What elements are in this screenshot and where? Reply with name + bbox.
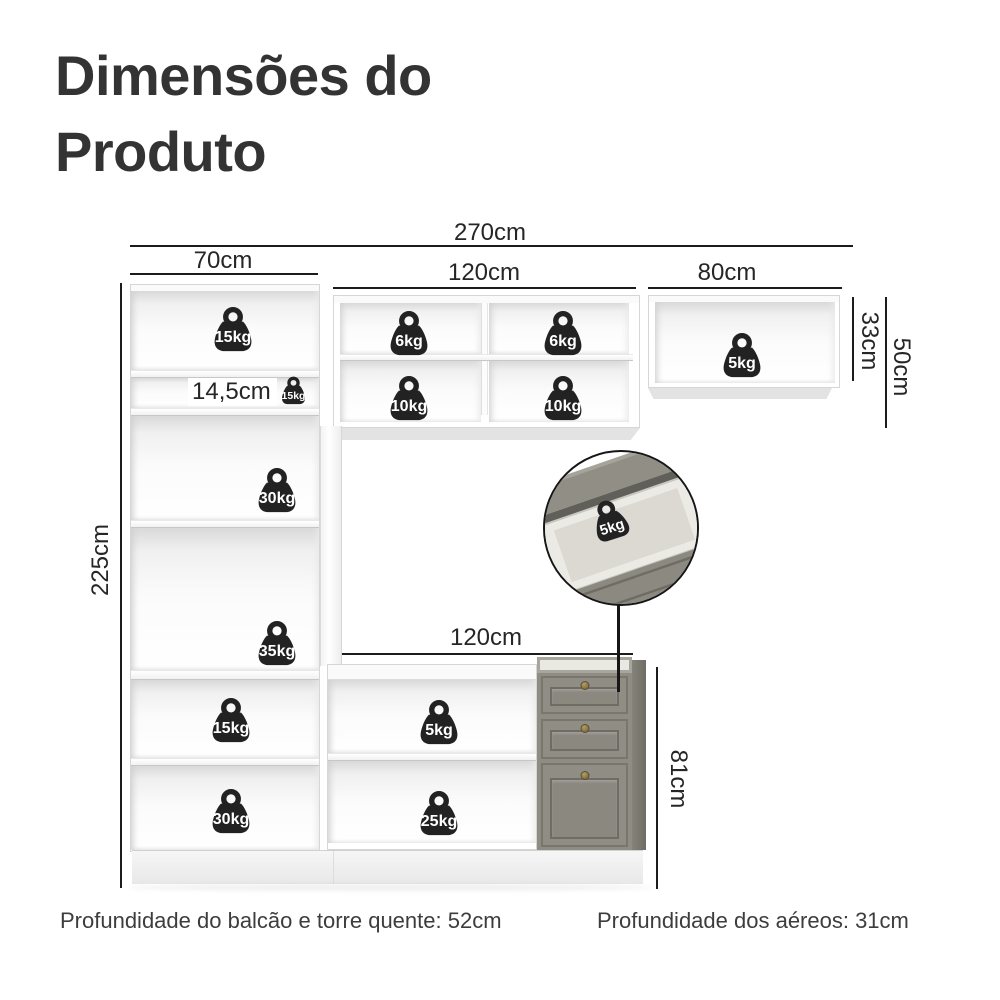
drawer-unit-side-panel (632, 660, 646, 850)
dim-line-upper-right-width (648, 287, 842, 289)
weight-badge-tower-space-lower: 35kg (248, 620, 306, 676)
drawer-1-knob-icon (580, 681, 589, 690)
page-title-line1: Dimensões do (55, 38, 432, 114)
dim-line-base-height (656, 667, 658, 889)
weight-badge-upper-right: 5kg (713, 332, 771, 388)
base-counter-face (328, 665, 536, 680)
callout-leader-line (617, 603, 620, 692)
weight-badge-base-upper: 5kg (410, 699, 468, 755)
dim-label-tower-height: 225cm (87, 524, 115, 596)
weight-badge-tower-space-upper: 30kg (248, 467, 306, 523)
dim-label-upper-right-height: 33cm (855, 312, 883, 371)
weight-badge-tower-top: 15kg (204, 306, 262, 362)
floor-shadow (126, 884, 652, 891)
dim-line-tower-height (120, 283, 122, 888)
drawer-1 (541, 676, 628, 714)
connecting-side-panel (320, 426, 342, 666)
upper-middle-top-face (334, 296, 639, 303)
dim-label-small-shelf: 14,5cm (188, 378, 277, 406)
weight-badge-upper-middle-1: 6kg (380, 310, 438, 366)
dim-label-upper-right-width: 80cm (698, 259, 757, 287)
dim-label-total-width: 270cm (454, 219, 526, 247)
dim-line-upper-right-height (852, 297, 854, 381)
drawer-3 (541, 763, 628, 847)
drawer-2 (541, 719, 628, 759)
dim-label-upper-middle-width: 120cm (448, 259, 520, 287)
drawer-3-panel (550, 778, 619, 839)
drawer-3-knob-icon (580, 771, 589, 780)
weight-badge-base-lower: 25kg (410, 790, 468, 846)
upper-right-bottom-panel (648, 388, 832, 399)
dim-label-tower-width: 70cm (194, 247, 253, 275)
tower-cabinet (130, 284, 320, 852)
drawer-2-panel (550, 730, 619, 751)
dim-label-upper-middle-height: 50cm (887, 338, 915, 397)
base-plinth (132, 850, 643, 884)
page-title: Dimensões do Produto (55, 38, 432, 189)
dim-label-base-height: 81cm (664, 750, 692, 809)
weight-badge-tower-bottom-upper: 15kg (202, 697, 260, 753)
weight-badge-upper-middle-2: 6kg (534, 310, 592, 366)
weight-badge-tower-bottom-lower: 30kg (202, 788, 260, 844)
dim-line-base-width (340, 653, 633, 655)
plinth-seam (333, 851, 334, 884)
product-dimensions-diagram: Dimensões do Produto 270cm 70cm 120cm 80… (0, 0, 1000, 1000)
weight-badge-upper-middle-3: 10kg (380, 375, 438, 431)
depth-note-upper: Profundidade dos aéreos: 31cm (597, 908, 909, 934)
drawer-2-knob-icon (580, 724, 589, 733)
page-title-line2: Produto (55, 114, 432, 190)
dim-line-upper-middle-width (333, 287, 636, 289)
tower-shelf (131, 758, 319, 766)
weight-badge-tower-small-shelf: 15kg (275, 376, 312, 411)
depth-note-base: Profundidade do balcão e torre quente: 5… (60, 908, 502, 934)
dim-label-base-width: 120cm (450, 624, 522, 652)
weight-badge-upper-middle-4: 10kg (534, 375, 592, 431)
